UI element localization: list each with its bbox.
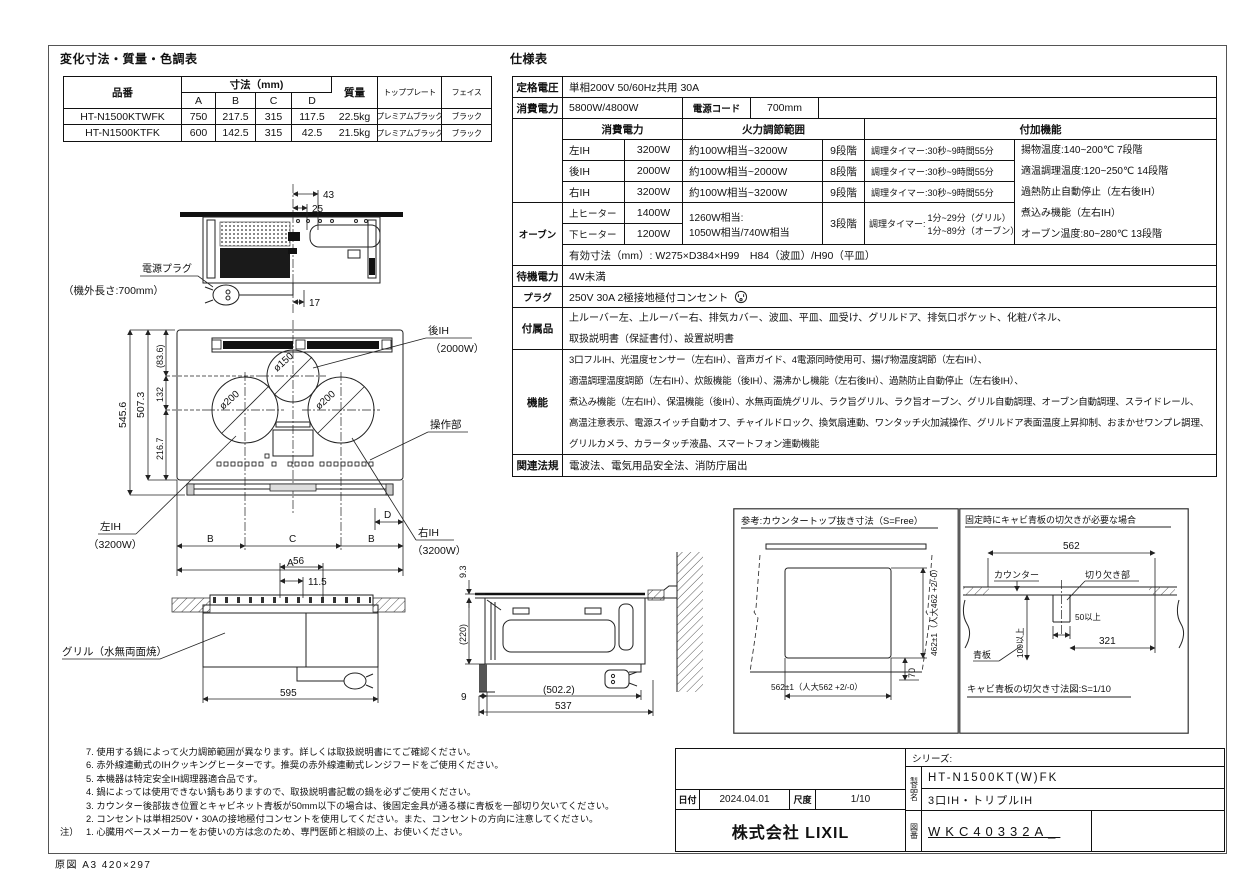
dim-col-partno: 品番 HT-N1500KTWFK HT-N1500KTFK [64,77,182,141]
oven-upper-watt: 1400W [625,203,683,224]
burner-watt: 2000W [625,161,683,182]
spec-empty-label [513,119,563,203]
dim-value-b: 217.5 [216,109,256,125]
circle-back-dia: ø150 [272,351,297,375]
dim-col-topplate: トッププレート プレミアムブラック プレミアムブラック [378,77,442,141]
spec-subheader-extra: 付加機能 [865,119,1216,140]
dim-value-mass: 22.5kg [332,109,378,125]
notes-prefix: 注） [60,826,79,839]
dim-545: 545.6 [117,402,129,428]
label-back-ih: 後IH [428,324,449,337]
spec-value-laws: 電波法、電気用品安全法、消防庁届出 [563,455,1216,476]
product-line1: HT-N1500KT(W)FK [922,767,1224,789]
date-value: 2024.04.01 [700,790,790,810]
burner-range: 約100W相当~2000W [683,161,823,182]
dim-216: 216.7 [155,437,165,460]
functions-line: 3口フルIH、光温度センサー（左右IH）、音声ガイド、4電源同時使用可、揚げ物温… [569,350,987,371]
dim-value-d: 42.5 [292,125,332,141]
product-name-label: 製品名 [906,767,922,811]
note-line: 5. 本機器は特定安全IH調理器適合品です。 [60,773,700,786]
note-line: 3. カウンター後部抜き位置とキャビネット青板が50mm以下の場合は、後固定金具… [60,800,700,813]
dim-value-face: ブラック [442,109,491,125]
oven-timer-prefix: 調理タイマー: [869,217,926,230]
board-label: 青板 [973,649,991,660]
origin-note: 原図 A3 420×297 [55,856,152,871]
dim-header-dims-group: 寸法（mm) [182,77,332,93]
spec-label-power: 消費電力 [513,98,563,119]
dim-43: 43 [323,190,335,201]
spec-label-rated-voltage: 定格電圧 [513,77,563,98]
label-right-ih: 右IH [418,526,439,539]
extra-function: 煮込み機能（左右IH） [1021,203,1121,224]
burner-timer: 調理タイマー:30秒~9時間55分 [865,182,1015,203]
dim-value-c: 315 [256,109,292,125]
spec-label-cord: 電源コード [683,98,751,119]
circle-right-dia: ø200 [314,389,339,413]
burner-name: 右IH [563,182,625,203]
dimension-lines: 562±1（人大562 +2/-0） 462±1（人大462 +2/-0） 70 [771,565,939,701]
dimension-lines: 56 11.5 595 [203,556,378,703]
dim-header-d: D [292,93,332,109]
label-panel: 操作部 [430,418,462,431]
scale-label: 尺度 [790,790,816,810]
dim-header-mass: 質量 [332,77,378,109]
functions-line: グリルカメラ、カラータッチ液晶、スマートフォン連動機能 [569,434,819,455]
dim-header-face: フェイス [442,77,491,109]
oven-lower-watt: 1200W [625,224,683,245]
functions-line: 高温注意表示、電源スイッチ自動オフ、チャイルドロック、換気扇連動、ワンタッチ火加… [569,413,1209,434]
functions-line: 煮込み機能（左右IH）、保温機能（後IH）、水無両面焼グリル、ラク旨グリル、ラク… [569,392,1199,413]
oven-timer-line2: 1分~89分（オーブン） [928,224,1015,237]
dim-b1: B [207,534,214,545]
spec-subheader-range: 火力調節範囲 [683,119,865,140]
outlet-icon [734,290,748,304]
cutout-dim-70: 70 [907,668,917,678]
spec-subheader-power: 消費電力 [563,119,683,140]
dim-115: 11.5 [308,577,327,588]
dimension-lines: 9.3 (220) 9 (502.2) 537 [458,565,653,716]
drawing-no-value: WKC40332A_ [922,811,1092,851]
oven-lower-label: 下ヒーター [563,224,625,245]
spec-label-laws: 関連法規 [513,455,563,476]
notes-block: 7. 使用する鍋によって火力調節範囲が異なります。詳しくは取扱説明書にてご確認く… [60,746,700,840]
plug-label: 電源プラグ [142,262,192,275]
dim-b2: B [368,534,375,545]
dim-header-part-no: 品番 [64,77,182,109]
dim-col-mass: 質量 22.5kg 21.5kg [332,77,378,141]
dim-header-c: C [256,93,292,109]
burner-watt: 3200W [625,140,683,161]
dim-56: 56 [293,556,305,567]
dim-value-mass: 21.5kg [332,125,378,141]
spec-empty [819,98,1216,119]
cutout-dim-height: 462±1（人大462 +2/-0） [929,565,939,657]
title-block: 日付 2024.04.01 尺度 1/10 株式会社 LIXIL シリーズ: 製… [675,748,1225,852]
dim-9: 9 [461,692,467,703]
drawing-sheet: 変化寸法・質量・色調表 品番 HT-N1500KTWFK HT-N1500KTF… [0,0,1238,876]
dim-25: 25 [312,204,324,215]
burner-watt: 3200W [625,182,683,203]
dimension-table: 品番 HT-N1500KTWFK HT-N1500KTFK 寸法（mm) A B… [63,76,492,142]
dim-83: (83.6) [155,344,165,368]
spec-value-plug: 250V 30A 2極接地極付コンセント [563,287,1216,308]
dim-value-face: ブラック [442,125,491,141]
dim-c: C [289,534,296,545]
spec-value-rated-voltage: 単相200V 50/60Hz共用 30A [563,77,1216,98]
extra-function: オーブン温度:80~280℃ 13段階 [1021,224,1162,245]
product-line2: 3口IH・トリプルIH [922,789,1224,811]
dim-value-top-plate: プレミアムブラック [378,109,442,125]
functions-line: 適温調理温度調節（左右IH）、炊飯機能（後IH）、湯沸かし機能（左右後IH）、過… [569,371,1024,392]
accessories-line1: 上ルーバー左、上ルーバー右、排気カバー、波皿、平皿、皿受け、グリルドア、排気口ポ… [569,308,1067,329]
dimension-lines: 562 50以上 321 100以上 [988,541,1155,660]
circle-left-dia: ø200 [218,389,243,413]
dim-d: D [384,510,391,521]
accessories-line2: 取扱説明書（保証書付）、設置説明書 [569,329,734,350]
dim-132: 132 [155,387,165,402]
burner-name: 後IH [563,161,625,182]
company-name: 株式会社 LIXIL [676,810,905,851]
dim-507: 507.3 [135,392,147,418]
dimension-lines: 43 25 17 [293,190,335,309]
oven-timer-line1: 1分~29分（グリル） [928,211,1015,224]
dim-header-b: B [216,93,256,109]
burner-steps: 9段階 [823,140,865,161]
series-label: シリーズ: [906,749,1224,767]
plug-note: （機外長さ:700mm） [63,284,164,297]
backboard-dim-321: 321 [1099,636,1116,647]
cutout-dim-width: 562±1（人大562 +2/-0） [771,682,863,692]
backboard-dim-562: 562 [1063,541,1080,552]
spec-label-functions: 機能 [513,350,563,455]
dim-value-a: 750 [182,109,216,125]
bottom-view-diagram: 43 25 17 電源プラグ （機外長さ:700mm） [60,180,480,325]
burner-steps: 8段階 [823,161,865,182]
dim-220: (220) [458,624,468,645]
dim-595: 595 [280,688,297,699]
label-left-ih: 左IH [100,520,121,533]
oven-range-line1: 1260W相当: [689,209,743,224]
counter-label: カウンター [994,570,1039,580]
note-line: 1. 心臓用ペースメーカーをお使いの方は念のため、専門医師と相談の上、お使いくだ… [60,826,700,839]
scale-value: 1/10 [816,790,905,810]
burner-range: 約100W相当~3200W [683,140,823,161]
plug-text: 250V 30A 2極接地極付コンセント [569,290,728,305]
spec-table-title: 仕様表 [510,50,548,67]
dim-value-d: 117.5 [292,109,332,125]
notch-label: 切り欠き部 [1085,569,1130,580]
dim-value-b: 142.5 [216,125,256,141]
dim-row-part-no: HT-N1500KTWFK [64,109,182,125]
title-block-spare [1092,811,1224,851]
dim-17: 17 [309,298,321,309]
extra-function: 過熱防止自動停止（左右後IH） [1021,182,1161,203]
spec-value-standby: 4W未満 [563,266,1216,287]
dim-5022: (502.2) [543,685,575,696]
spec-label-standby: 待機電力 [513,266,563,287]
spec-value-cord: 700mm [751,98,819,119]
spec-label-oven: オーブン [513,203,563,266]
cutout-reference-box: 参考:カウンタートップ抜き寸法（S=Free） 562±1（人大562 +2/-… [733,508,959,734]
front-view-diagram: 56 11.5 595 グリル（水無両面焼） [60,555,460,723]
backboard-caption: キャビ青板の切欠き寸法図:S=1/10 [967,683,1111,694]
burner-timer: 調理タイマー:30秒~9時間55分 [865,140,1015,161]
dim-value-top-plate: プレミアムブラック [378,125,442,141]
backboard-dim-100: 100以上 [1015,628,1025,658]
extra-function: 揚物温度:140~200℃ 7段階 [1021,140,1143,161]
burner-steps: 9段階 [823,182,865,203]
dimension-table-title: 変化寸法・質量・色調表 [60,50,198,67]
note-line: 6. 赤外線連動式のIHクッキングヒーターです。推奨の赤外線連動式レンジフードを… [60,759,700,772]
dim-value-c: 315 [256,125,292,141]
dim-537: 537 [555,701,572,712]
burner-name: 左IH [563,140,625,161]
oven-range-line2: 1050W相当/740W相当 [689,224,790,239]
oven-steps: 3段階 [823,203,865,245]
dim-header-top-plate: トッププレート [378,77,442,109]
burner-timer: 調理タイマー:30秒~9時間55分 [865,161,1015,182]
label-left-watt: （3200W） [88,539,142,551]
spec-value-power: 5800W/4800W [563,98,683,119]
title-block-empty [676,749,905,790]
burner-range: 約100W相当~3200W [683,182,823,203]
backboard-notch-box: 固定時にキャビ青板の切欠きが必要な場合 562 50以上 321 100以上 カ… [959,508,1189,734]
backboard-dim-50: 50以上 [1075,612,1101,622]
drawing-no-label: 図番 [906,811,922,851]
dim-col-face: フェイス ブラック ブラック [442,77,491,141]
dim-header-a: A [182,93,216,109]
side-view-diagram: 9.3 (220) 9 (502.2) 537 [455,550,745,755]
spec-label-accessories: 付属品 [513,308,563,350]
extra-function: 適温調理温度:120~250℃ 14段階 [1021,161,1168,182]
note-line: 4. 鍋によっては使用できない鍋もありますので、取扱説明書記載の鍋を必ずご使用く… [60,786,700,799]
spec-label-plug: プラグ [513,287,563,308]
grill-label: グリル（水無両面焼） [62,645,167,658]
date-label: 日付 [676,790,700,810]
note-line: 2. コンセントは単相250V・30Aの接地極付コンセントを使用してください。ま… [60,813,700,826]
dim-row-part-no: HT-N1500KTFK [64,125,182,141]
spec-table: 定格電圧 単相200V 50/60Hz共用 30A 消費電力 5800W/480… [512,76,1217,477]
dim-col-dims: 寸法（mm) A B C D 750 217.5 315 117.5 600 1… [182,77,332,141]
dimension-lines: 545.6 507.3 (83.6) 132 216.7 D B C B [117,330,403,576]
dim-value-a: 600 [182,125,216,141]
oven-upper-label: 上ヒーター [563,203,625,224]
note-line: 7. 使用する鍋によって火力調節範囲が異なります。詳しくは取扱説明書にてご確認く… [60,746,700,759]
oven-inner-dims: 有効寸法（mm）: W275×D384×H99 H84（波皿）/H90（平皿） [563,245,1216,266]
backboard-box-title: 固定時にキャビ青板の切欠きが必要な場合 [965,514,1136,525]
dim-93: 9.3 [458,565,468,578]
label-back-watt: （2000W） [430,343,480,355]
cutout-box-title: 参考:カウンタートップ抜き寸法（S=Free） [741,515,923,526]
